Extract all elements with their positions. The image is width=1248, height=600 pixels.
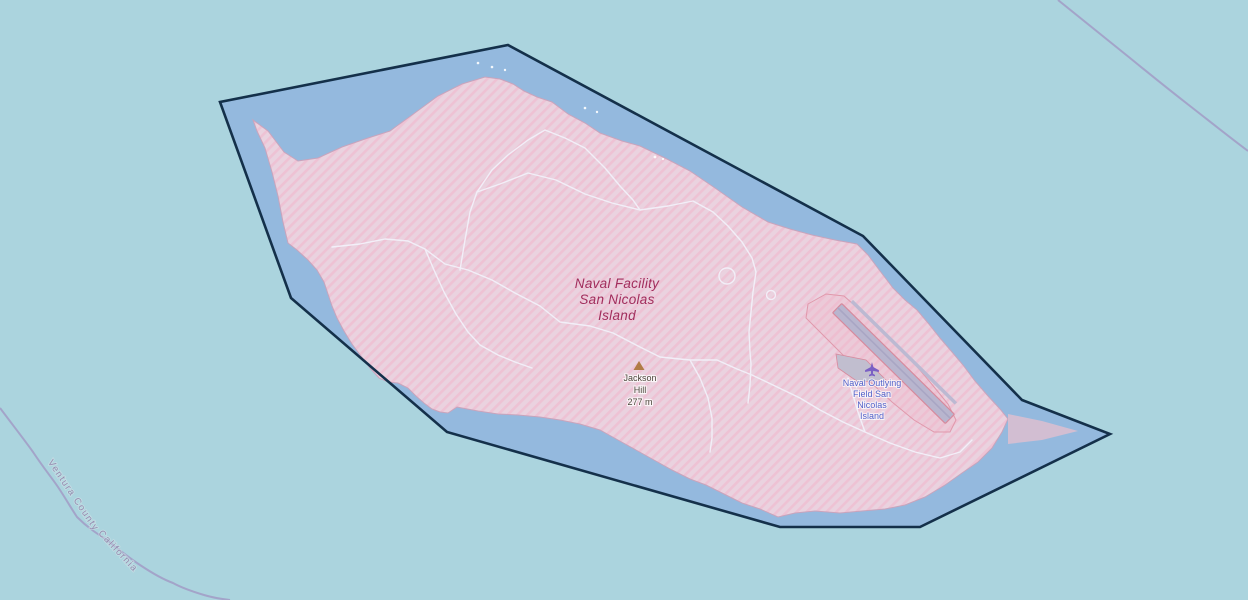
peak-elevation: 277 m	[627, 397, 652, 407]
airfield-label-line4: Island	[860, 411, 884, 421]
map-svg: Naval Facility San Nicolas Island Jackso…	[0, 0, 1248, 600]
military-label-line2: San Nicolas	[579, 292, 654, 307]
map-canvas[interactable]: Naval Facility San Nicolas Island Jackso…	[0, 0, 1248, 600]
military-label-line1: Naval Facility	[575, 276, 660, 291]
peak-name-line1: Jackson	[623, 373, 656, 383]
peak-name-line2: Hill	[634, 385, 647, 395]
military-label-line3: Island	[598, 308, 636, 323]
airfield-label-line1: Naval Outlying	[843, 378, 902, 388]
airfield-label-line2: Field San	[853, 389, 891, 399]
airfield-label-line3: Nicolas	[857, 400, 887, 410]
